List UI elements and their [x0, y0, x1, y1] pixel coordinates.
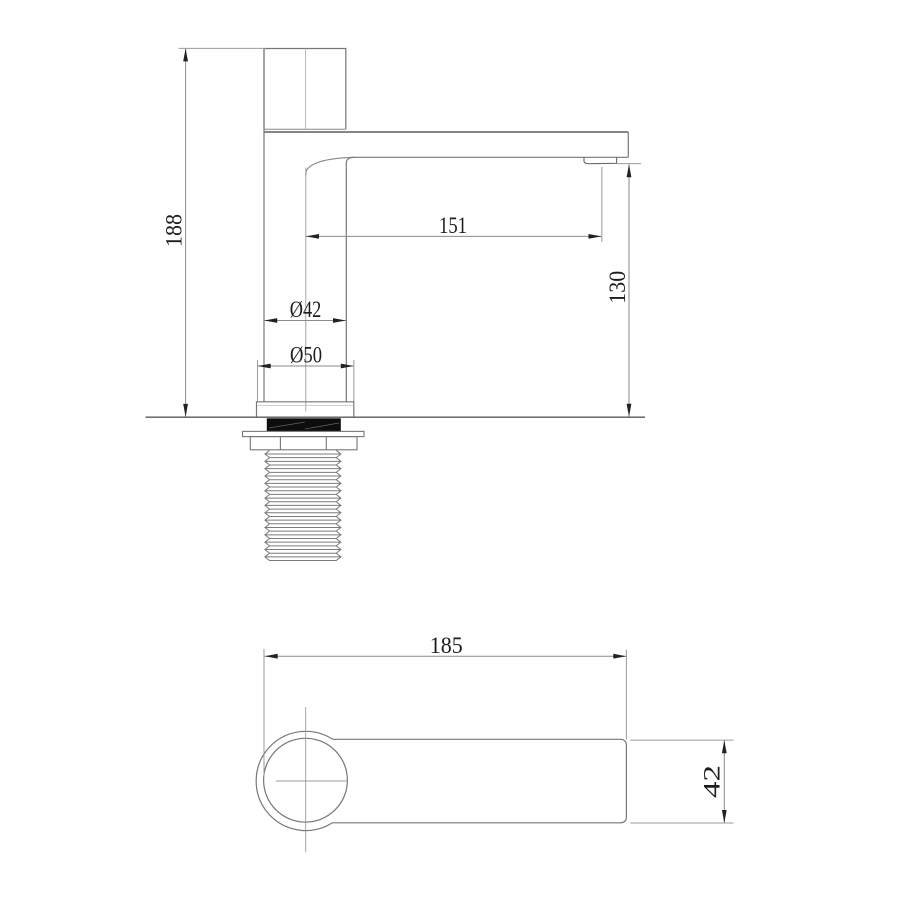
svg-text:Ø42: Ø42 [290, 297, 322, 322]
svg-text:Ø50: Ø50 [290, 343, 322, 368]
svg-text:188: 188 [162, 214, 187, 247]
svg-text:151: 151 [439, 213, 467, 238]
svg-text:42: 42 [700, 765, 725, 798]
svg-text:185: 185 [430, 633, 463, 658]
svg-text:130: 130 [605, 271, 630, 304]
